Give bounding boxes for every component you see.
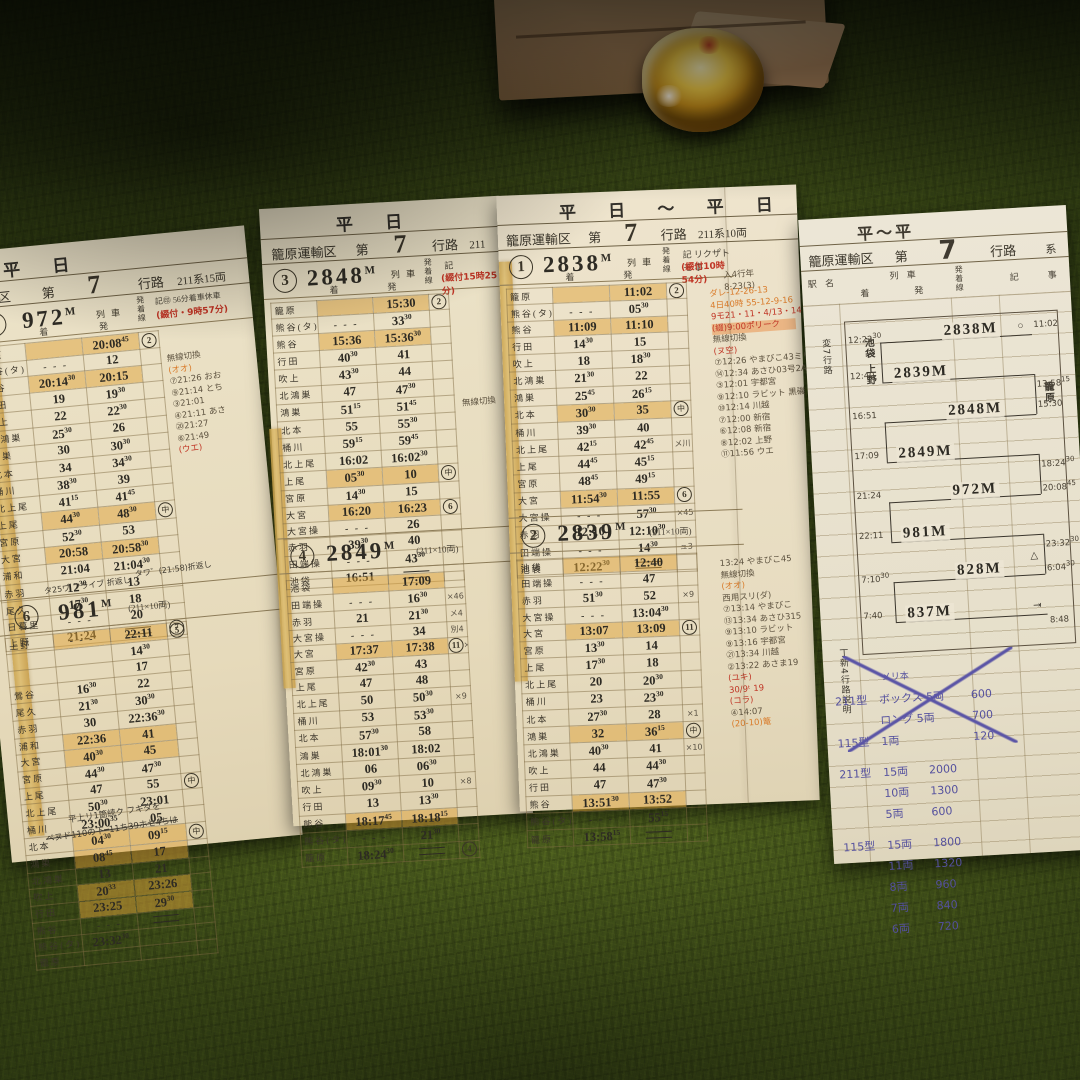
diagram-time-left: 7:1030 bbox=[861, 570, 890, 585]
train-order-circle: 2 bbox=[521, 523, 546, 548]
timetable-card-3: 平 日 〜 平 日 籠原運輸区 第 7 行路 211系10両 1 2838M 列… bbox=[496, 184, 819, 811]
diagram-time-right: 20:0845 bbox=[1042, 478, 1076, 494]
margin-notes: 無線切換 bbox=[462, 396, 497, 411]
diagram-time-right: 18:2430 bbox=[1041, 454, 1075, 470]
margin-notes: 無線切換(オオ)⑦21:26 おお⑨21:14 とち③21:01④21:11 あ… bbox=[166, 348, 231, 457]
end-mark bbox=[418, 847, 444, 855]
diagram-time-right: 23:3230 bbox=[1045, 534, 1079, 550]
fare-group: 115型15両180011両13208両9607両8406両720 bbox=[843, 824, 1080, 943]
fare-group: 211型15両200010両13005両600 bbox=[839, 751, 1080, 828]
dep-col-label: 発 bbox=[98, 319, 111, 333]
arr-col-label: 着 bbox=[39, 324, 52, 338]
cars-note: (211×10両) bbox=[649, 524, 692, 539]
train-number: 2849M bbox=[326, 537, 396, 567]
diagram-time-right: 8:48 bbox=[1050, 614, 1070, 625]
formation: 211系10両 bbox=[698, 227, 748, 241]
line-col-label: 発着線 bbox=[422, 258, 434, 286]
ressha-label: 列 車 bbox=[889, 267, 919, 282]
dep-col-label: 発 bbox=[623, 268, 636, 281]
diagram-time-right: 6:0430 bbox=[1047, 558, 1076, 573]
train-order-circle: 4 bbox=[290, 544, 315, 569]
diagram-connector bbox=[889, 502, 892, 542]
diagram-connector bbox=[894, 582, 897, 622]
dep-col-label: 発 bbox=[387, 279, 400, 293]
red-note: (綴付15時25分) bbox=[441, 268, 504, 297]
ekimei-label: 駅 名 bbox=[807, 276, 837, 291]
diagram-train-number: 837M bbox=[905, 603, 955, 623]
line-col-label: 発着線 bbox=[134, 295, 148, 323]
train-number: 981M bbox=[57, 595, 113, 626]
route-number: 7 bbox=[624, 218, 638, 247]
train-diagram: 池袋 上野 籠原 2838M12:223011:02○2839M12:4013:… bbox=[844, 310, 1076, 655]
end-mark bbox=[153, 914, 180, 923]
train-order-circle: 3 bbox=[272, 268, 297, 293]
route-number: 7 bbox=[86, 270, 102, 300]
diagram-time-left: 22:11 bbox=[859, 531, 884, 542]
arr-col-label: 着 bbox=[860, 286, 873, 300]
kiji-label: 記 bbox=[1009, 270, 1022, 284]
train-order-circle: 1 bbox=[509, 255, 534, 280]
diagram-time-left: 7:40 bbox=[863, 611, 883, 622]
kiji-note: 記 bbox=[444, 258, 454, 271]
station-table-2839M: 池袋12:40田端操- - -47赤羽513052×9大宮操- - -13:04… bbox=[516, 553, 708, 849]
diagram-time-right: 15:30 bbox=[1038, 399, 1063, 410]
route-number-handwritten: 7 bbox=[938, 235, 958, 266]
line-col-label: 発着線 bbox=[660, 246, 672, 273]
dai-label: 第 bbox=[41, 285, 55, 301]
ji-label: 事 bbox=[1047, 267, 1060, 281]
line-col-label: 発着線 bbox=[953, 265, 965, 293]
unit-name: 籠原運輸区 bbox=[271, 244, 337, 263]
diagram-time-right: 11:02 bbox=[1033, 319, 1058, 330]
diagram-connector bbox=[885, 422, 888, 462]
station-table-981M: 上野- - -22:115143017鶯谷163022尾久21303030赤羽3… bbox=[4, 621, 218, 971]
diagram-time-left: 17:09 bbox=[854, 451, 879, 462]
cross-x bbox=[843, 647, 1018, 752]
diagram-train-number: 972M bbox=[950, 480, 1000, 500]
diagram-train-number: 981M bbox=[900, 523, 950, 543]
diagram-time-left: 12:2230 bbox=[848, 331, 882, 347]
diagram-time-left: 12:40 bbox=[850, 371, 875, 382]
formation: 211 bbox=[469, 239, 486, 252]
diagram-time-left: 16:51 bbox=[852, 411, 877, 422]
koro-label: 行路 bbox=[990, 243, 1017, 259]
cars-note: (211×10両) bbox=[416, 542, 459, 557]
train-order-circle: 6 bbox=[13, 604, 39, 630]
timetable-card-2: 平 日 籠原運輸区 第 7 行路 211 3 2848M 列 車 着 発 発着線… bbox=[259, 196, 533, 826]
unit-name: 運輸区 bbox=[0, 289, 11, 308]
diagram-train-number: 2838M bbox=[941, 320, 1000, 340]
margin-notes-2838M: ダレ-12-26-134日40時 55-12-9-169モ21・11・4/13・… bbox=[709, 283, 805, 461]
train-order-circle: 5 bbox=[0, 312, 7, 338]
koro-label: 行路 bbox=[432, 237, 459, 253]
unit-name: 籠原運輸区 bbox=[506, 231, 572, 248]
koro-label: 行路 bbox=[137, 274, 164, 291]
koro-label: 行路 bbox=[660, 227, 687, 243]
diagram-train-number: 2849M bbox=[896, 443, 955, 463]
fare-table: メリ本211型ボックス 5両600ロング 5両700115型1両120211型1… bbox=[833, 657, 1080, 943]
diagram-time-right: 13:5815 bbox=[1036, 374, 1070, 390]
cars-note: (211×10両) bbox=[127, 597, 170, 614]
diagram-end-mark: ○ bbox=[1017, 321, 1024, 332]
arr-col-label: 着 bbox=[329, 283, 342, 297]
diagram-time-left: 21:24 bbox=[856, 491, 881, 502]
dai-label: 第 bbox=[894, 249, 908, 265]
diagram-train-number: 2839M bbox=[892, 363, 951, 383]
end-mark bbox=[646, 830, 672, 838]
margin-note-top: 変7行路 bbox=[819, 338, 834, 375]
section-head-2839M: 2 2839M (211×10両) bbox=[509, 509, 744, 554]
diagram-card-4: 平〜平 籠原運輸区 第 7 行路 系 駅 名 列 車 着 発 発着線 記 事 変… bbox=[798, 205, 1080, 864]
dai-label: 第 bbox=[588, 230, 602, 245]
handwritten-note: 無線切換 bbox=[462, 396, 497, 411]
diagram-train-number: 828M bbox=[955, 560, 1005, 580]
margin-notes-2839M: 13:24 やまびこ45無線切換(オオ)西用スリ(ダ)⑦13:14 やまびこ⑬1… bbox=[719, 553, 815, 731]
diagram-train-number: 2848M bbox=[946, 400, 1005, 420]
arr-col-label: 着 bbox=[565, 270, 578, 283]
diagram-connector bbox=[880, 343, 883, 383]
dai-label: 第 bbox=[355, 242, 369, 258]
photo-scene: 平 日 運輸区 第 7 行路 211系15両 5 972M 列 車 着 発 発着… bbox=[0, 0, 1080, 1080]
diagram-end-mark: △ bbox=[1030, 550, 1038, 561]
route-number: 7 bbox=[393, 229, 408, 259]
station-table-2849M: 池袋17:09田端操- - -1630×46赤羽212130メ4大宮操- - -… bbox=[286, 570, 481, 868]
kei-label: 系 bbox=[1045, 244, 1057, 257]
dep-col-label: 発 bbox=[914, 283, 927, 297]
unit-name: 籠原運輸区 bbox=[808, 251, 874, 270]
diagram-end-mark: ⇥ bbox=[1033, 600, 1042, 611]
train-number: 2839M bbox=[557, 518, 626, 547]
